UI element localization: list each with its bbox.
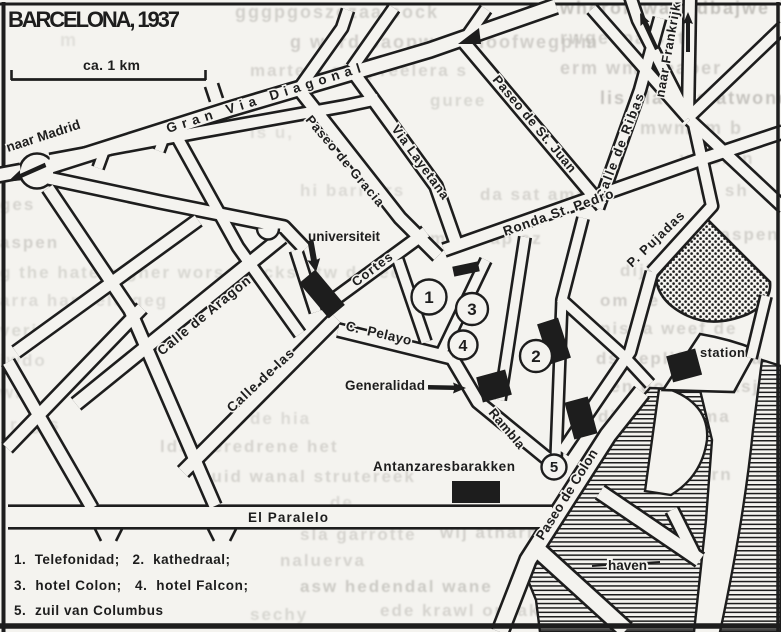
svg-text:4: 4 — [459, 338, 468, 355]
svg-text:BARCELONA, 1937: BARCELONA, 1937 — [8, 7, 180, 32]
svg-text:2: 2 — [531, 347, 540, 366]
svg-text:sechy: sechy — [250, 605, 308, 624]
svg-text:haven: haven — [608, 558, 647, 573]
svg-text:ca. 1 km: ca. 1 km — [83, 57, 140, 73]
svg-text:1. Telefonidad; 2. kathedr: 1. Telefonidad; 2. kathedraal; — [14, 552, 230, 567]
svg-text:5: 5 — [550, 459, 558, 476]
svg-text:Generalidad: Generalidad — [345, 378, 425, 393]
svg-text:naluerva: naluerva — [280, 551, 366, 570]
svg-text:1: 1 — [424, 288, 433, 307]
svg-text:Antanzaresbarakken: Antanzaresbarakken — [373, 459, 515, 474]
svg-text:3: 3 — [467, 300, 476, 319]
svg-text:m: m — [60, 30, 78, 50]
svg-text:3. hotel Colon; 4. hotel F: 3. hotel Colon; 4. hotel Falcon; — [14, 578, 248, 593]
svg-text:aspen: aspen — [0, 233, 59, 252]
svg-text:guree: guree — [430, 91, 486, 110]
svg-text:5. zuil van Columbus: 5. zuil van Columbus — [14, 603, 163, 618]
svg-text:asw hedendal wane: asw hedendal wane — [300, 577, 493, 596]
svg-text:g the hate higher worsd dicks: g the hate higher worsd dicks atw doree — [0, 263, 402, 282]
svg-text:universiteit: universiteit — [308, 229, 381, 244]
svg-text:de hia: de hia — [250, 409, 311, 428]
svg-text:station: station — [700, 345, 745, 360]
svg-text:El Paralelo: El Paralelo — [248, 510, 328, 525]
